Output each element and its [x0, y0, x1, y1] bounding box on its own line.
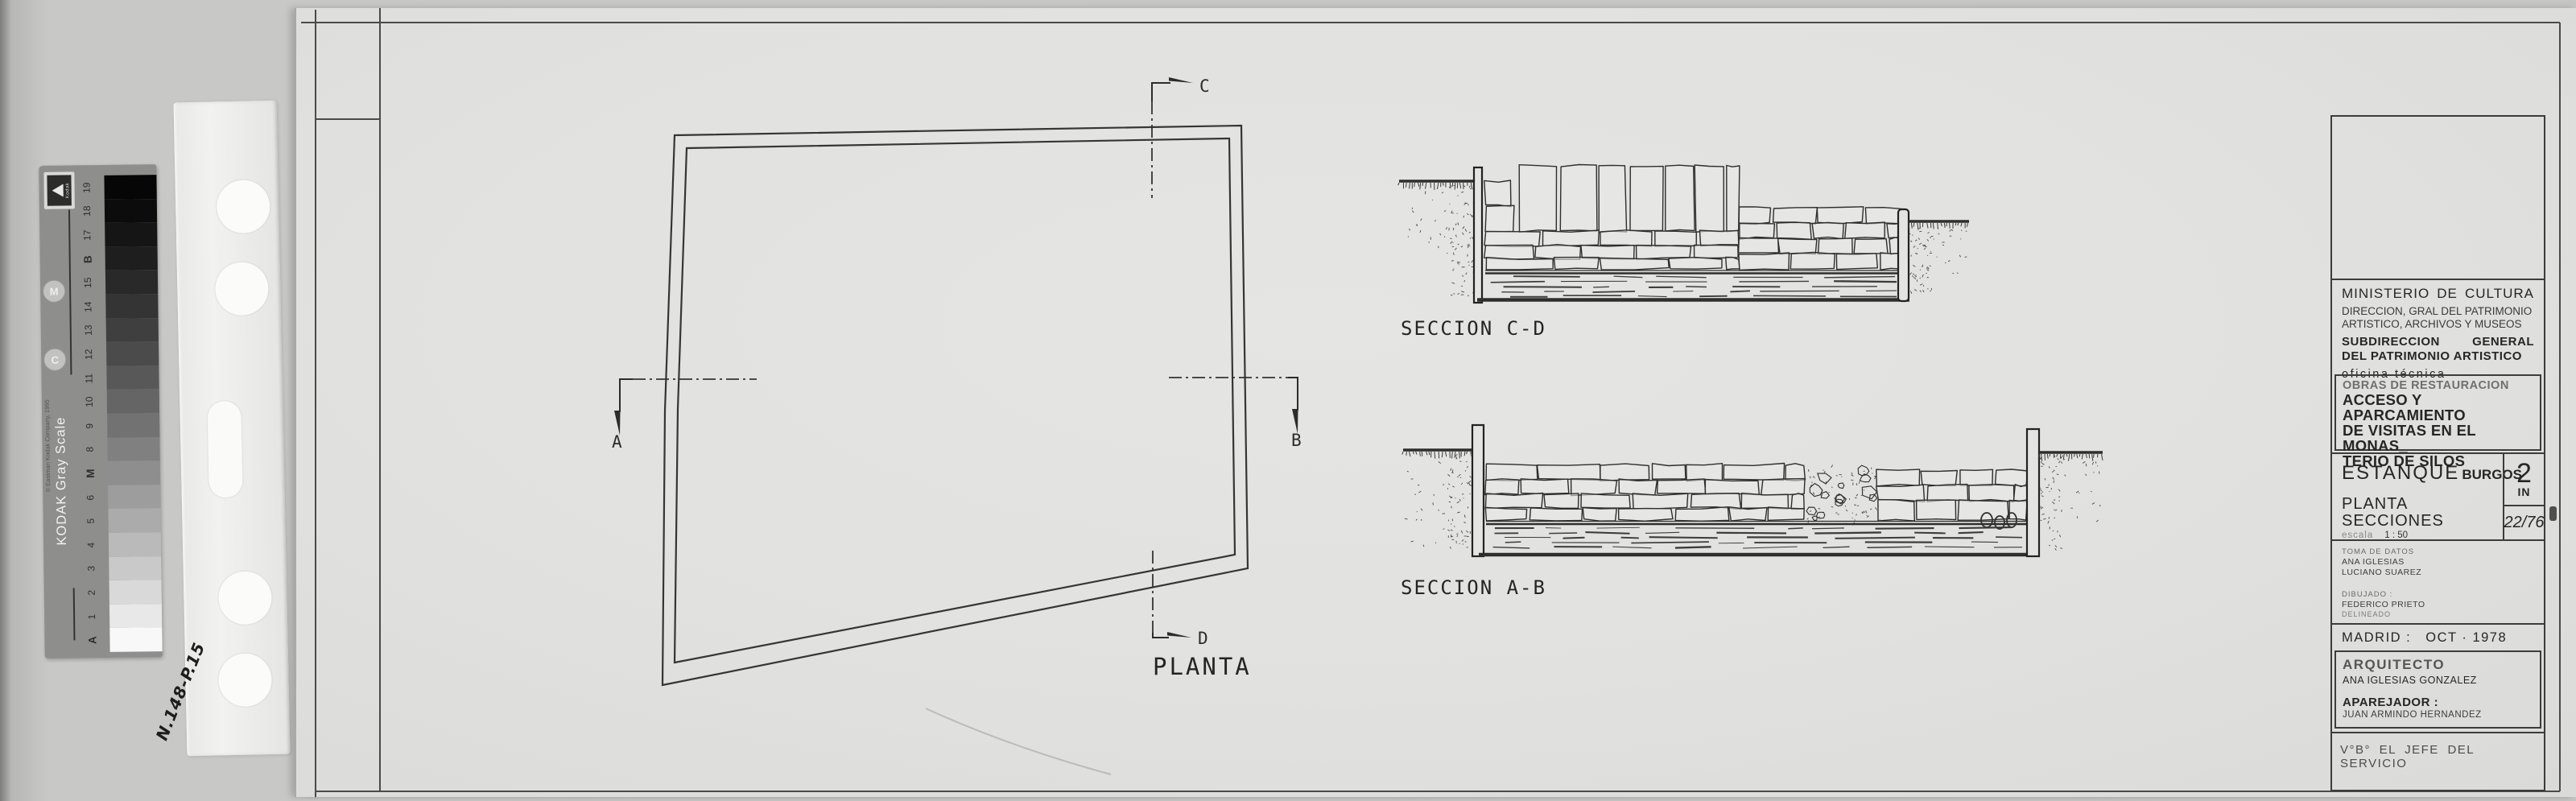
- archive-number: 22/76: [2504, 514, 2544, 532]
- stone: [1773, 208, 1818, 224]
- stone: [1619, 479, 1657, 495]
- section-ab-label: SECCION A-B: [1401, 576, 1546, 599]
- scale-step-label: 3: [85, 556, 97, 580]
- stone: [1485, 205, 1514, 231]
- kodak-logo-inner: Kodak: [47, 175, 71, 205]
- plan-outline-inner: [675, 138, 1235, 663]
- rubble-stone: [1818, 473, 1831, 484]
- masonry-post: [1472, 425, 1484, 556]
- magenta-circle-badge: M: [43, 280, 65, 303]
- stone: [1876, 469, 1920, 486]
- rubble-stone: [1817, 512, 1825, 518]
- stone: [1486, 258, 1553, 270]
- drawn-by-sub: DELINEADO: [2342, 610, 2534, 618]
- gray-patch-19: [104, 175, 156, 199]
- water-line: [1996, 537, 2022, 538]
- kodak-logo-word: Kodak: [66, 183, 71, 199]
- water-line: [1675, 547, 1711, 547]
- team-section: ARQUITECTO ANA IGLESIAS GONZALEZ APAREJA…: [2332, 650, 2544, 732]
- stone: [1699, 230, 1738, 246]
- water-line: [1686, 287, 1707, 287]
- stone: [1583, 508, 1616, 522]
- water-line: [1614, 276, 1643, 278]
- stone: [1581, 493, 1630, 508]
- surveyor-label: APAREJADOR :: [2343, 696, 2533, 709]
- drawing-content-line1: PLANTA: [2342, 496, 2503, 513]
- stone: [1836, 254, 1877, 270]
- stone: [1741, 493, 1788, 509]
- stone: [1485, 479, 1519, 495]
- water-line: [1645, 532, 1679, 533]
- sheet-number-cell: 2 IN: [2504, 454, 2544, 506]
- scale-rule-line: [73, 588, 75, 640]
- sheet-number: 2: [2516, 461, 2532, 485]
- water-line: [1504, 287, 1582, 287]
- marker-c-label: C: [1199, 76, 1210, 96]
- kodak-patch-column: [104, 175, 162, 652]
- kodak-title: KODAK Gray Scale: [52, 376, 72, 585]
- water-line: [1563, 538, 1585, 539]
- scale-step-label: 11: [82, 366, 95, 390]
- water-line: [1959, 532, 1984, 533]
- ministry-direction-line1: DIRECCION, GRAL DEL PATRIMONIO: [2342, 305, 2534, 317]
- stone: [1768, 507, 1804, 520]
- stone: [1653, 464, 1686, 479]
- stone: [1519, 165, 1556, 233]
- stone: [1927, 485, 1968, 502]
- water-line: [1656, 276, 1707, 277]
- scale-step-label: 19: [80, 175, 93, 200]
- stone: [1727, 166, 1740, 232]
- punch-hole: [215, 262, 269, 316]
- project-title-line1: ACCESO Y APARCAMIENTO: [2343, 392, 2533, 423]
- kodak-copyright: © Eastman Kodak Company, 1995: [43, 394, 55, 498]
- rubble-stone: [1858, 465, 1869, 476]
- punch-hole: [217, 180, 270, 233]
- gray-patch-2: [109, 580, 162, 604]
- title-block: MINISTERIO DE CULTURA DIRECCION, GRAL DE…: [2330, 115, 2545, 791]
- subdirection-line1: SUBDIRECCION GENERAL: [2342, 335, 2534, 349]
- stone: [1724, 464, 1784, 481]
- gray-patch-17: [105, 222, 157, 246]
- punch-hole: [218, 571, 272, 625]
- sheet-number-suffix: IN: [2518, 485, 2531, 498]
- stone: [2014, 485, 2028, 502]
- stone: [1554, 258, 1599, 270]
- stone: [1529, 508, 1582, 521]
- stone: [1485, 507, 1526, 521]
- water-line: [1585, 532, 1629, 534]
- stone: [1560, 165, 1597, 231]
- water-line: [1743, 547, 1798, 548]
- gray-patch-3: [109, 556, 161, 580]
- section-marker-d: D: [1153, 629, 1208, 648]
- stone: [1675, 507, 1729, 522]
- gray-patch-12: [106, 341, 159, 365]
- water-line: [1513, 276, 1580, 277]
- scale-step-label: 8: [83, 437, 96, 461]
- stone: [1485, 493, 1542, 509]
- stone: [1818, 238, 1853, 254]
- architect-name: ANA IGLESIAS GONZALEZ: [2343, 675, 2533, 686]
- stone: [1655, 231, 1697, 246]
- water-line: [1823, 547, 1849, 547]
- water-line: [1597, 527, 1640, 528]
- stone: [1600, 258, 1669, 270]
- scale-step-label: 1: [85, 605, 98, 629]
- team-box: ARQUITECTO ANA IGLESIAS GONZALEZ APAREJA…: [2334, 650, 2541, 729]
- stone: [1761, 479, 1805, 496]
- gray-patch-13: [106, 318, 159, 342]
- stone: [1845, 222, 1885, 238]
- section-marker-b: B: [1288, 378, 1302, 450]
- marker-a-label: A: [612, 432, 622, 452]
- scale-step-label: 4: [85, 533, 97, 557]
- section-marker-c: C: [1152, 76, 1210, 101]
- scale-step-label: 15: [81, 270, 94, 295]
- stone: [1666, 165, 1695, 231]
- stone: [1538, 464, 1601, 481]
- gray-patch-11: [106, 365, 159, 390]
- ministry-header: MINISTERIO DE CULTURA DIRECCION, GRAL DE…: [2332, 279, 2544, 373]
- rubble-stone: [1806, 507, 1817, 515]
- stone: [1790, 253, 1835, 270]
- ministry-name: MINISTERIO DE CULTURA: [2342, 286, 2534, 302]
- arrow-right-icon: [1167, 632, 1191, 638]
- credits-section: TOMA DE DATOS ANA IGLESIAS LUCIANO SUARE…: [2332, 539, 2544, 623]
- water-line: [1549, 533, 1577, 534]
- stone: [1777, 222, 1811, 239]
- project-title-line2: DE VISITAS EN EL MONAS_: [2343, 423, 2533, 453]
- stone: [1778, 238, 1817, 254]
- gray-patch-14: [105, 294, 158, 318]
- masonry-post: [1474, 167, 1482, 303]
- punch-slot: [207, 401, 243, 498]
- sheet-frame: [301, 8, 2568, 798]
- drawing-title-cell: ESTANQUE PLANTA SECCIONES escala 1 : 50: [2332, 454, 2503, 539]
- stone: [2009, 500, 2027, 520]
- marker-d-label: D: [1198, 629, 1208, 648]
- stone: [1854, 239, 1888, 254]
- stone: [1729, 507, 1767, 521]
- approval-row: V°B° EL JEFE DEL SERVICIO: [2332, 732, 2544, 790]
- water-line: [1593, 287, 1609, 287]
- scale-rule-line: [68, 209, 72, 374]
- water-line: [1959, 527, 2011, 528]
- stone: [1812, 223, 1843, 239]
- scale-step-label: 12: [82, 342, 95, 366]
- water-line: [1824, 277, 1895, 278]
- scale-step-label: 9: [83, 414, 96, 438]
- drawing-content-line2: SECCIONES: [2342, 513, 2503, 530]
- gray-patch-9: [107, 413, 159, 437]
- cyan-circle-badge: C: [43, 349, 66, 371]
- water-line: [1638, 296, 1667, 297]
- stone: [1740, 223, 1775, 239]
- paper-edge-mark: [2549, 506, 2557, 521]
- gray-patch-18: [105, 199, 157, 223]
- architect-label: ARQUITECTO: [2343, 657, 2533, 673]
- water-line: [1716, 533, 1786, 534]
- plan-label: PLANTA: [1153, 653, 1252, 680]
- sheet-number-column: 2 IN 22/76: [2503, 454, 2544, 539]
- water-line: [1621, 538, 1639, 539]
- gray-patch-1: [109, 604, 162, 628]
- stone: [1695, 246, 1739, 258]
- stone: [1486, 464, 1538, 481]
- scale-step-label: A: [85, 628, 98, 652]
- water-line: [1699, 296, 1728, 297]
- scale-step-label: 2: [85, 580, 98, 605]
- stone: [1958, 500, 2008, 520]
- water-line: [1812, 528, 1844, 529]
- water-line: [1491, 282, 1545, 283]
- gray-patch-15: [105, 270, 158, 294]
- water-line: [1788, 528, 1803, 529]
- project-section: OBRAS DE RESTAURACION ACCESO Y APARCAMIE…: [2332, 373, 2544, 452]
- water-line: [1814, 532, 1881, 533]
- stone: [1544, 493, 1579, 508]
- water-line: [1649, 537, 1718, 538]
- stone: [1917, 500, 1956, 519]
- masonry-post: [2027, 429, 2039, 556]
- stone: [1484, 180, 1511, 207]
- water-line: [1493, 547, 1530, 548]
- stone: [1600, 230, 1652, 246]
- stone: [1865, 208, 1901, 224]
- stone: [1739, 253, 1790, 270]
- stone: [1921, 471, 1957, 486]
- water-line: [1730, 291, 1750, 291]
- approval-text: V°B° EL JEFE DEL SERVICIO: [2340, 743, 2475, 770]
- stone: [1739, 207, 1770, 225]
- subdirection-line2: DEL PATRIMONIO ARTISTICO: [2342, 349, 2534, 363]
- drawn-by-label: DIBUJADO :: [2342, 590, 2534, 599]
- rubble-stone: [1838, 483, 1844, 489]
- gray-patch-A: [109, 627, 162, 651]
- scale-step-label: 14: [81, 295, 94, 319]
- date-value: OCT · 1978: [2425, 630, 2507, 646]
- gray-patch-5: [108, 508, 160, 532]
- kodak-gray-scale-strip: Kodak KODAK Gray Scale © Eastman Kodak C…: [39, 164, 162, 659]
- stamp-box: [2332, 117, 2544, 279]
- date-row: MADRID : OCT · 1978: [2332, 623, 2544, 650]
- water-line: [1505, 542, 1521, 543]
- rubble-stone: [1810, 484, 1823, 497]
- kodak-arrow-icon: [52, 184, 64, 197]
- scanned-sheet: C D A B PLANTA SECCION C-D SECCION: [0, 0, 2576, 801]
- section-trace-lines: [633, 101, 1288, 633]
- drawing-title-row: ESTANQUE PLANTA SECCIONES escala 1 : 50 …: [2332, 452, 2544, 539]
- scale-step-label: 13: [82, 318, 95, 342]
- gray-patch-6: [108, 485, 160, 509]
- archive-number-cell: 22/76: [2504, 506, 2544, 539]
- stone: [1599, 165, 1627, 232]
- stone: [1543, 230, 1600, 246]
- kodak-logo-icon: Kodak: [43, 171, 75, 209]
- plan-pencil-mark: [926, 708, 1111, 774]
- scale-step-label: 5: [84, 509, 97, 533]
- gray-patch-B: [105, 246, 158, 270]
- rubble-stone: [1821, 492, 1829, 498]
- stone: [1960, 469, 1993, 485]
- scale-step-label: 6: [84, 485, 97, 510]
- gray-patch-8: [107, 437, 159, 461]
- stone: [1726, 258, 1740, 270]
- stone: [1630, 167, 1663, 231]
- data-capture-name1: ANA IGLESIAS: [2342, 557, 2534, 567]
- scale-step-label: 10: [83, 390, 96, 414]
- masonry-post: [1898, 209, 1909, 301]
- drawing-layer: C D A B PLANTA SECCION C-D SECCION: [0, 0, 2576, 801]
- place-label: MADRID :: [2342, 630, 2411, 646]
- stone: [1791, 493, 1804, 510]
- stone: [1969, 485, 2014, 502]
- works-type: OBRAS DE RESTAURACION: [2343, 379, 2533, 392]
- rubble-stone: [1869, 494, 1876, 502]
- ministry-direction-line2: ARTISTICO, ARCHIVOS Y MUSEOS: [2342, 318, 2534, 330]
- arrow-right-icon: [1169, 77, 1193, 83]
- water-line: [1834, 281, 1897, 282]
- punch-hole: [218, 653, 272, 707]
- project-box: OBRAS DE RESTAURACION ACCESO Y APARCAMIE…: [2334, 374, 2541, 451]
- gray-patch-4: [109, 532, 161, 556]
- water-line: [1835, 538, 1915, 539]
- section-ab-drawing: [1402, 425, 2103, 556]
- scale-step-label: M: [84, 461, 97, 485]
- stone: [1695, 165, 1724, 232]
- stone: [1785, 464, 1805, 481]
- section-marker-a: A: [612, 379, 633, 452]
- stone: [1996, 469, 2028, 486]
- stone: [1690, 493, 1740, 510]
- section-cd-drawing: [1398, 165, 1969, 303]
- water-line: [1914, 533, 1946, 534]
- scale-step-label: 18: [80, 199, 93, 223]
- water-line: [1612, 547, 1651, 548]
- stone: [1705, 480, 1759, 495]
- kodak-card: Kodak KODAK Gray Scale © Eastman Kodak C…: [39, 164, 162, 659]
- plan-outline-outer: [663, 126, 1248, 685]
- section-cd-label: SECCION C-D: [1401, 317, 1546, 340]
- drawing-name: ESTANQUE: [2342, 462, 2503, 485]
- stone: [1878, 500, 1914, 522]
- stone: [1484, 231, 1540, 246]
- stone: [1633, 493, 1688, 509]
- water-line: [1592, 291, 1635, 292]
- marker-b-label: B: [1291, 431, 1302, 450]
- stone: [1817, 207, 1863, 224]
- scale-step-label: 17: [80, 223, 93, 247]
- water-line: [1925, 547, 1975, 547]
- scale-step-label: B: [81, 247, 94, 271]
- stone: [1657, 479, 1706, 493]
- data-capture-name2: LUCIANO SUAREZ: [2342, 568, 2534, 577]
- stone: [1739, 238, 1779, 253]
- water-line: [1631, 542, 1709, 543]
- gray-patch-10: [107, 389, 159, 413]
- water-line: [1876, 528, 1934, 529]
- water-line: [1867, 547, 1912, 547]
- stone: [1600, 464, 1649, 481]
- gray-patch-M: [108, 460, 160, 485]
- stone: [1669, 258, 1722, 270]
- surveyor-name: JUAN ARMINDO HERNANDEZ: [2343, 710, 2533, 720]
- stone: [1619, 509, 1673, 522]
- drawn-by-name: FEDERICO PRIETO: [2342, 600, 2534, 609]
- data-capture-label: TOMA DE DATOS: [2342, 547, 2534, 556]
- stone: [1637, 246, 1691, 259]
- stone: [1521, 479, 1569, 494]
